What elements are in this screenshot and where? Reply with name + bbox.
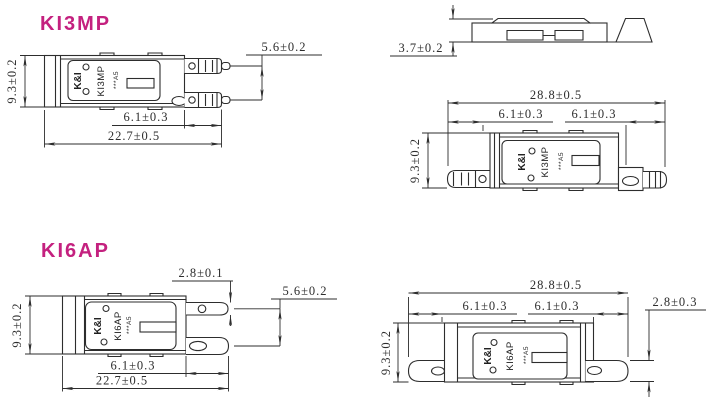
- blade-left-hole: [432, 367, 445, 375]
- extension-lines-pitch: [234, 299, 337, 346]
- dim-label-height: 9.3±0.2: [379, 330, 393, 375]
- dim-label-terminal-right: 6.1±0.3: [534, 299, 579, 313]
- terminal-right: [643, 172, 667, 189]
- reset-slot: [140, 322, 176, 332]
- ki3mp-single-view: KI3MP K&I KI3MP ***A5 9.3±0.2 5.6±0.2 6.…: [5, 13, 322, 148]
- dim-label-blade-thickness: 2.8±0.3: [652, 295, 697, 309]
- blade-terminal-top: [186, 303, 228, 316]
- dim-label-pitch: 5.6±0.2: [282, 284, 327, 298]
- profile-bent-terminal: [608, 19, 653, 43]
- reset-slot: [532, 353, 567, 363]
- device-brand-label: K&I: [483, 347, 494, 364]
- extension-lines-terminal-left: [442, 314, 517, 322]
- reset-slot: [127, 79, 154, 89]
- ki6ap-double-view: K&I KI6AP ***A5 28.8±0.5 6.1±0.3 6.1±0.3…: [379, 278, 706, 397]
- extension-lines-blade-thickness: [630, 310, 706, 382]
- device-model-label: KI3MP: [540, 146, 551, 177]
- dim-label-blade-width: 2.8±0.1: [178, 266, 223, 280]
- dim-label-terminal-left: 6.1±0.3: [462, 299, 507, 313]
- dim-label-terminal-right: 6.1±0.3: [571, 107, 616, 121]
- dim-label-total-length: 22.7±0.5: [96, 374, 148, 388]
- dim-label-total-length: 22.7±0.5: [108, 129, 160, 143]
- extension-lines-height: [20, 56, 45, 108]
- extension-lines-pitch: [230, 55, 322, 100]
- ki3mp-profile-view: 3.7±0.2: [390, 5, 652, 56]
- technical-drawing-canvas: KI3MP K&I KI3MP ***A5 9.3±0.2 5.6±0.2 6.…: [0, 0, 709, 405]
- device-brand-label: K&I: [517, 153, 528, 170]
- device-brand-label: K&I: [93, 317, 104, 334]
- dim-label-total-length: 28.8±0.5: [530, 88, 582, 102]
- blade-right-hole: [588, 367, 602, 375]
- extension-lines-terminal-left: [483, 122, 553, 131]
- dim-label-terminal-left: 6.1±0.3: [498, 107, 543, 121]
- dim-label-height: 9.3±0.2: [5, 58, 19, 103]
- terminal-bottom-lead-stub: [222, 97, 231, 104]
- device-model-label: KI6AP: [113, 311, 124, 340]
- device-code-label: ***A5: [126, 316, 133, 334]
- view-title: KI3MP: [40, 13, 111, 35]
- dim-label-height: 9.3±0.2: [10, 302, 24, 347]
- profile-cover: [492, 19, 590, 24]
- dim-label-total-length: 28.8±0.5: [530, 278, 582, 292]
- ki3mp-double-view: K&I KI3MP ***A5 28.8±0.5 6.1±0.3 6.1±0.3…: [408, 88, 667, 191]
- device-model-label: KI3MP: [96, 65, 107, 96]
- device-code-label: ***A5: [558, 152, 565, 170]
- device-brand-label: K&I: [73, 72, 84, 89]
- terminal-left-hole: [479, 175, 486, 182]
- terminal-top-hole: [189, 63, 195, 69]
- device-model-label: KI6AP: [505, 341, 516, 370]
- view-title: KI6AP: [41, 240, 110, 262]
- blade-top-hole: [198, 305, 206, 313]
- terminal-top-lead-stub: [222, 63, 231, 70]
- device-code-label: ***A5: [113, 71, 120, 89]
- extension-lines-height: [25, 296, 63, 354]
- oval-hole: [190, 341, 207, 350]
- device-code-label: ***A5: [523, 346, 530, 364]
- dim-label-terminal-length: 6.1±0.3: [110, 359, 155, 373]
- dim-label-thickness: 3.7±0.2: [398, 41, 443, 55]
- dim-label-pitch: 5.6±0.2: [261, 40, 306, 54]
- dim-label-height: 9.3±0.2: [408, 138, 422, 183]
- dim-label-terminal-length: 6.1±0.3: [123, 110, 168, 124]
- oval-hole: [172, 97, 186, 106]
- drawing-sheet: KI3MP K&I KI3MP ***A5 9.3±0.2 5.6±0.2 6.…: [0, 0, 709, 405]
- ki6ap-single-view: KI6AP K&I KI6AP ***A5 2.8±0.1 5.6±0.2 9.…: [10, 240, 337, 392]
- oval-hole: [623, 177, 639, 186]
- profile-base: [472, 23, 607, 42]
- terminal-bottom-hole: [189, 97, 195, 103]
- reset-slot: [572, 156, 599, 166]
